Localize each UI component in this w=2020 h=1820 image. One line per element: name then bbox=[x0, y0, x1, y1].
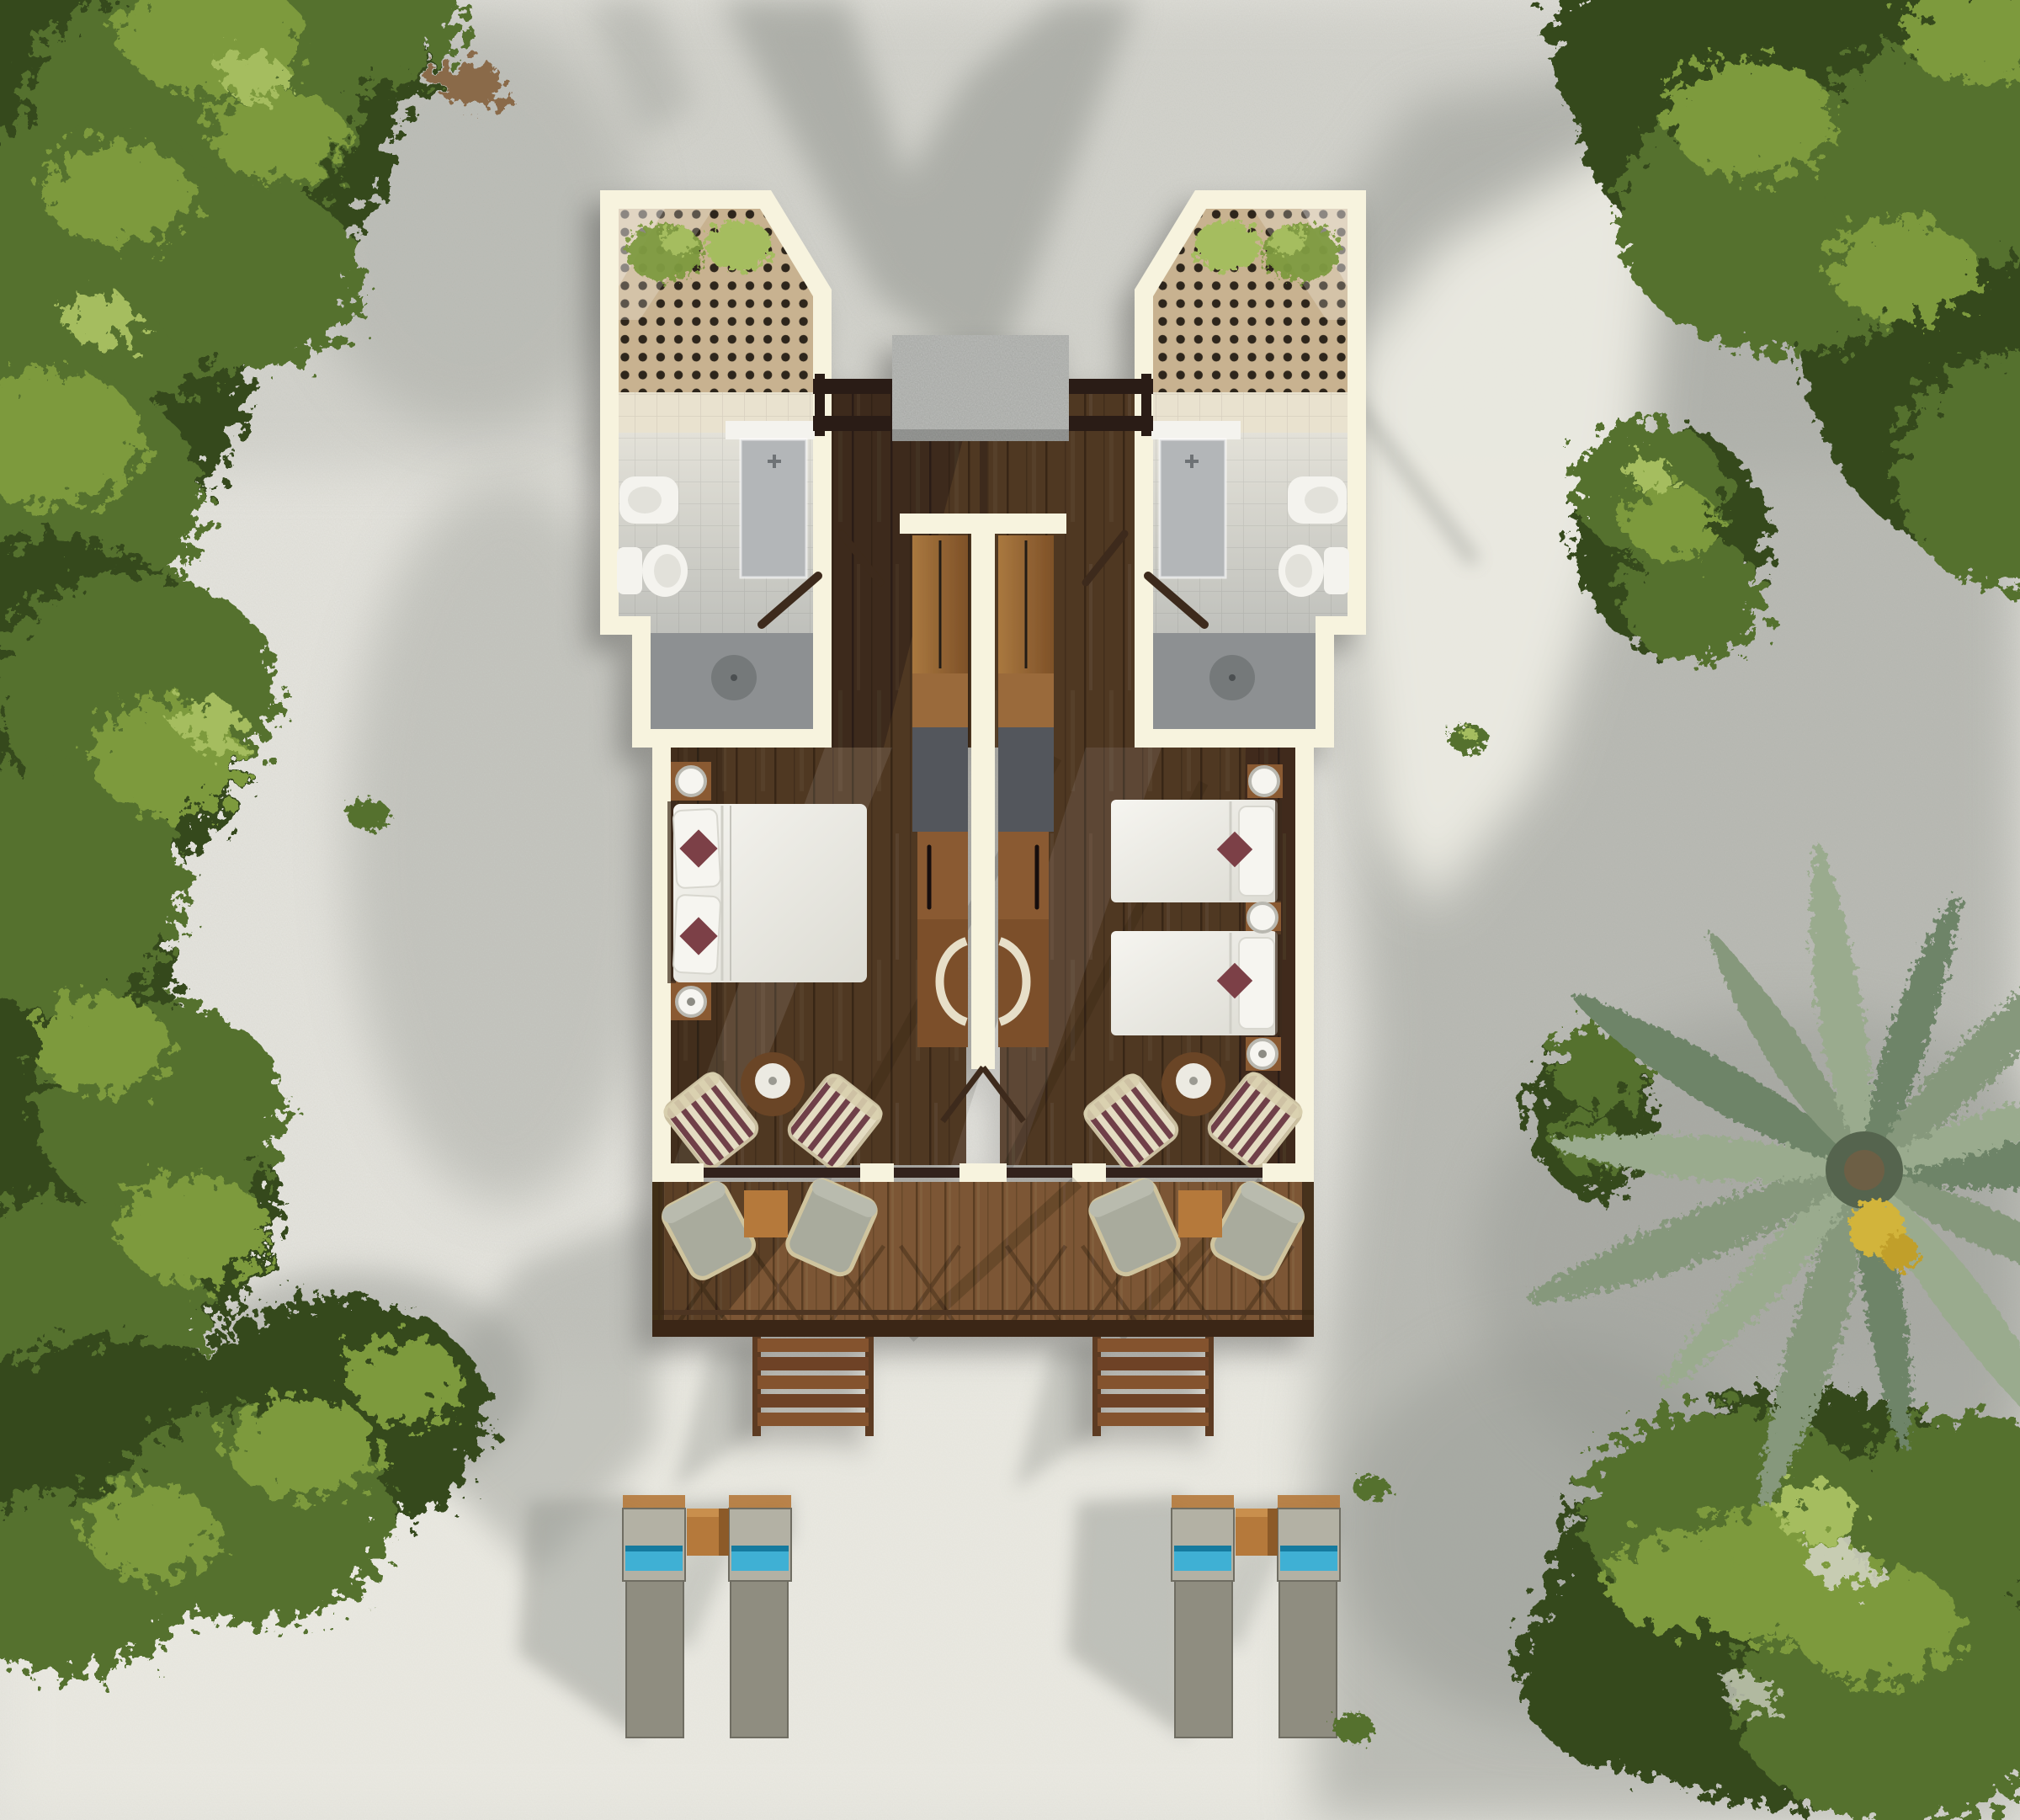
wardrobe-right bbox=[998, 535, 1054, 727]
wardrobe-left bbox=[912, 535, 968, 727]
deck-side-table bbox=[744, 1190, 788, 1237]
bedside-lamp bbox=[1250, 767, 1278, 796]
bathroom-left bbox=[600, 190, 832, 748]
deck-stairs-left bbox=[752, 1337, 874, 1436]
dividing-wall bbox=[971, 514, 995, 1069]
villa-building bbox=[600, 190, 1366, 1436]
deck-railing bbox=[652, 1320, 1314, 1337]
bedside-lamp bbox=[1248, 903, 1277, 932]
twin-bed-2 bbox=[1111, 931, 1282, 1035]
minibar-cabinet-left bbox=[917, 832, 968, 919]
terrace-deck bbox=[652, 1176, 1314, 1337]
minibar-cabinet-right bbox=[998, 832, 1049, 919]
bedside-lamp bbox=[677, 767, 705, 796]
bathroom-right bbox=[1135, 190, 1366, 748]
twin-bed-1 bbox=[1111, 800, 1282, 902]
central-spine bbox=[900, 514, 1066, 1121]
aerial-villa-render bbox=[0, 0, 2020, 1820]
deck-stairs-right bbox=[1092, 1337, 1214, 1436]
deck-side-table bbox=[1178, 1190, 1222, 1237]
stone-slab bbox=[892, 335, 1069, 441]
